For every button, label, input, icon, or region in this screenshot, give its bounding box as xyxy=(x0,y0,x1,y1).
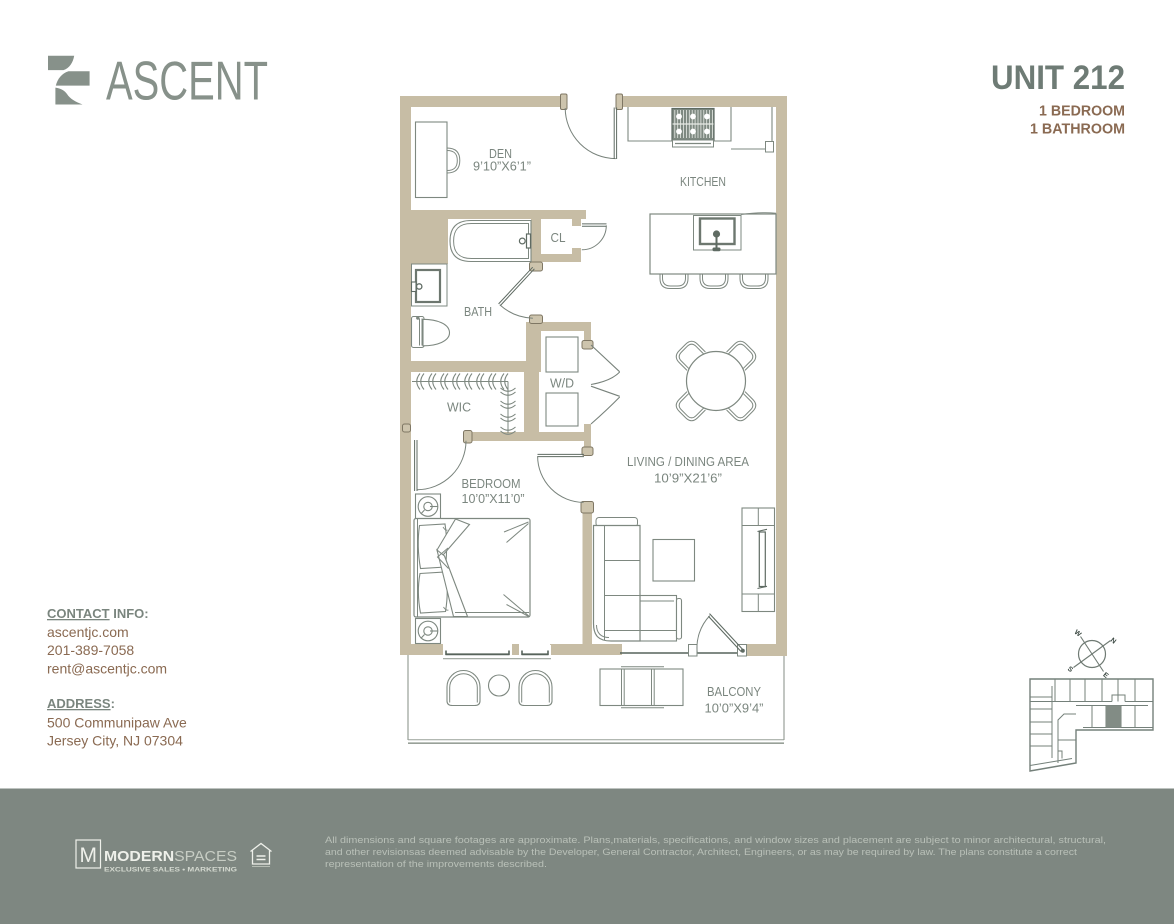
svg-text:KITCHEN: KITCHEN xyxy=(680,175,726,189)
svg-text:CL: CL xyxy=(551,231,566,245)
svg-text:500 Communipaw Ave: 500 Communipaw Ave xyxy=(47,715,187,731)
svg-text:rent@ascentjc.com: rent@ascentjc.com xyxy=(47,661,167,677)
svg-text:and other revisionsas deemed a: and other revisionsas deemed advisable b… xyxy=(325,847,1077,858)
svg-text:BEDROOM: BEDROOM xyxy=(462,477,521,491)
svg-text:MODERNSPACES: MODERNSPACES xyxy=(104,848,237,865)
svg-text:M: M xyxy=(79,844,97,867)
svg-text:1 BEDROOM: 1 BEDROOM xyxy=(1039,104,1125,120)
svg-text:LIVING / DINING AREA: LIVING / DINING AREA xyxy=(627,454,749,469)
svg-text:EXCLUSIVE SALES • MARKETING: EXCLUSIVE SALES • MARKETING xyxy=(104,867,237,874)
svg-text:UNIT 212: UNIT 212 xyxy=(991,59,1125,97)
svg-text:ASCENT: ASCENT xyxy=(106,50,268,112)
svg-text:ADDRESS:: ADDRESS: xyxy=(47,696,115,711)
svg-text:CONTACT INFO:: CONTACT INFO: xyxy=(47,606,149,621)
svg-text:Jersey City, NJ 07304: Jersey City, NJ 07304 xyxy=(47,733,183,749)
svg-text:N: N xyxy=(1109,637,1117,646)
svg-text:9’10”X6’1”: 9’10”X6’1” xyxy=(473,160,531,174)
svg-text:All dimensions and square foot: All dimensions and square footages are a… xyxy=(325,835,1106,846)
svg-text:representation of the improvem: representation of the improvements descr… xyxy=(325,859,547,870)
svg-text:10’0”X9’4”: 10’0”X9’4” xyxy=(705,702,764,716)
svg-text:201-389-7058: 201-389-7058 xyxy=(47,642,134,658)
svg-text:WIC: WIC xyxy=(447,401,471,415)
svg-text:BALCONY: BALCONY xyxy=(707,685,762,699)
svg-text:BATH: BATH xyxy=(464,305,492,319)
svg-text:W/D: W/D xyxy=(550,377,574,391)
svg-text:S: S xyxy=(1066,666,1074,675)
svg-text:ascentjc.com: ascentjc.com xyxy=(47,624,129,640)
svg-text:10’9”X21’6”: 10’9”X21’6” xyxy=(654,471,722,486)
svg-text:1 BATHROOM: 1 BATHROOM xyxy=(1030,122,1125,138)
svg-text:10’0”X11’0”: 10’0”X11’0” xyxy=(462,492,525,506)
